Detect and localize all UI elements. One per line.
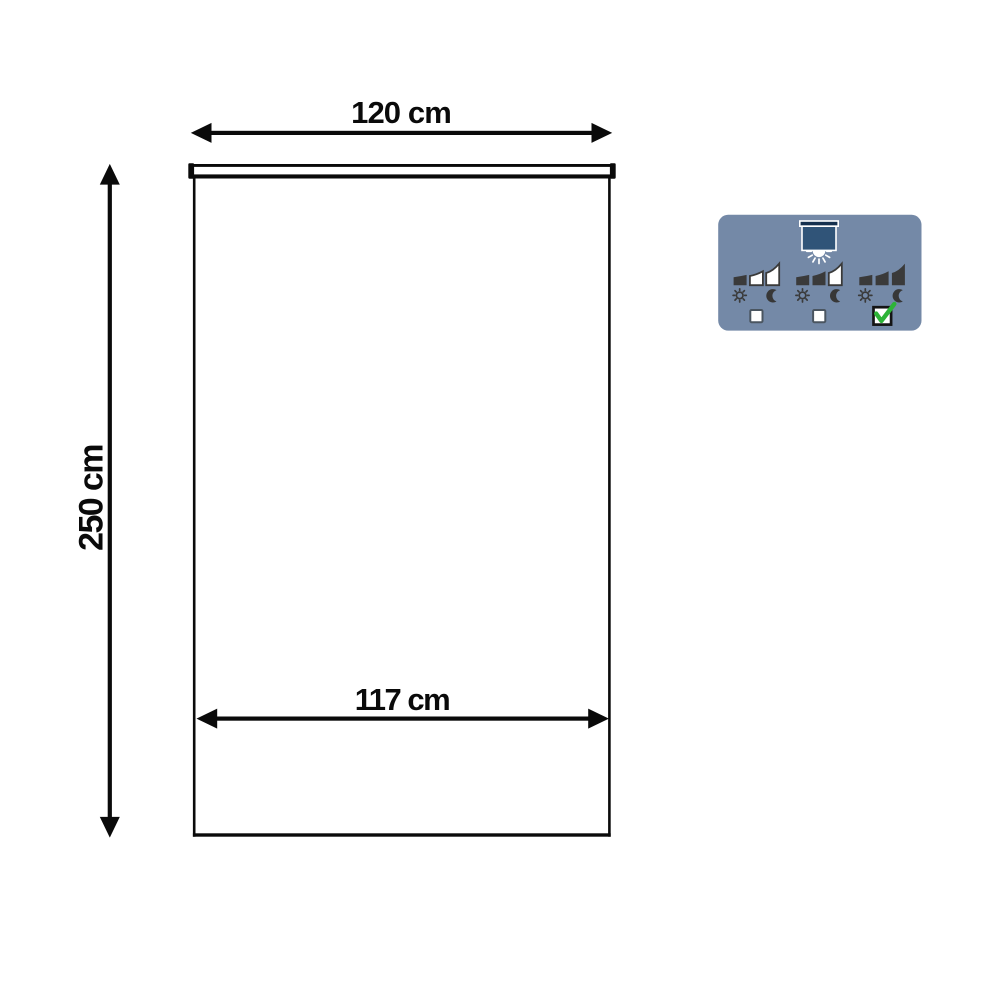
svg-text:250 cm: 250 cm [73,445,111,551]
svg-text:117 cm: 117 cm [355,682,449,717]
svg-text:120 cm: 120 cm [351,95,451,130]
